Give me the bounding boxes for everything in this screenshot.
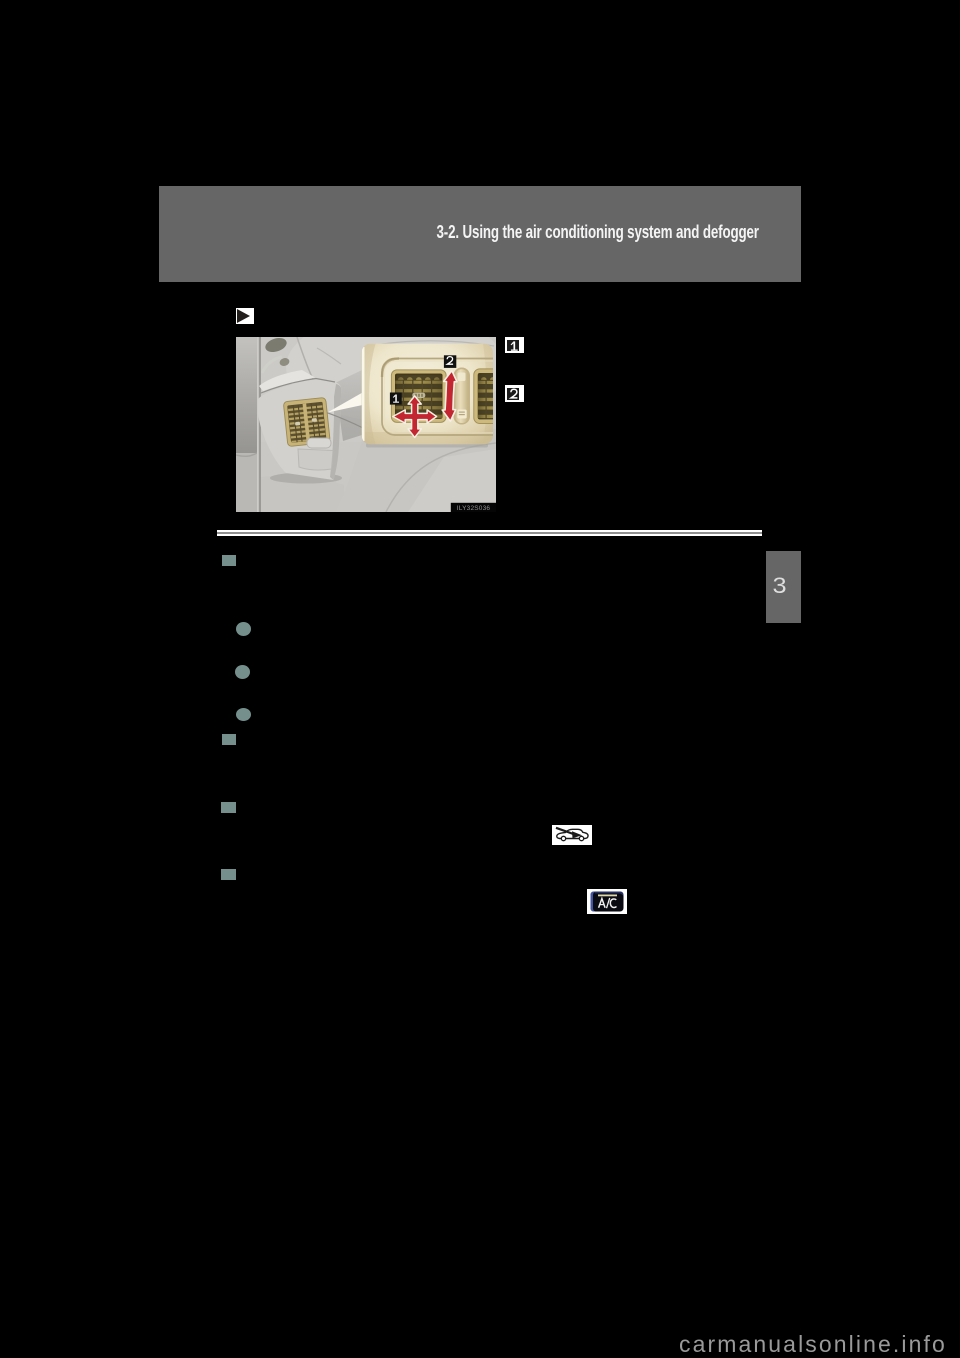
svg-text:ILY32S036: ILY32S036	[457, 505, 491, 512]
